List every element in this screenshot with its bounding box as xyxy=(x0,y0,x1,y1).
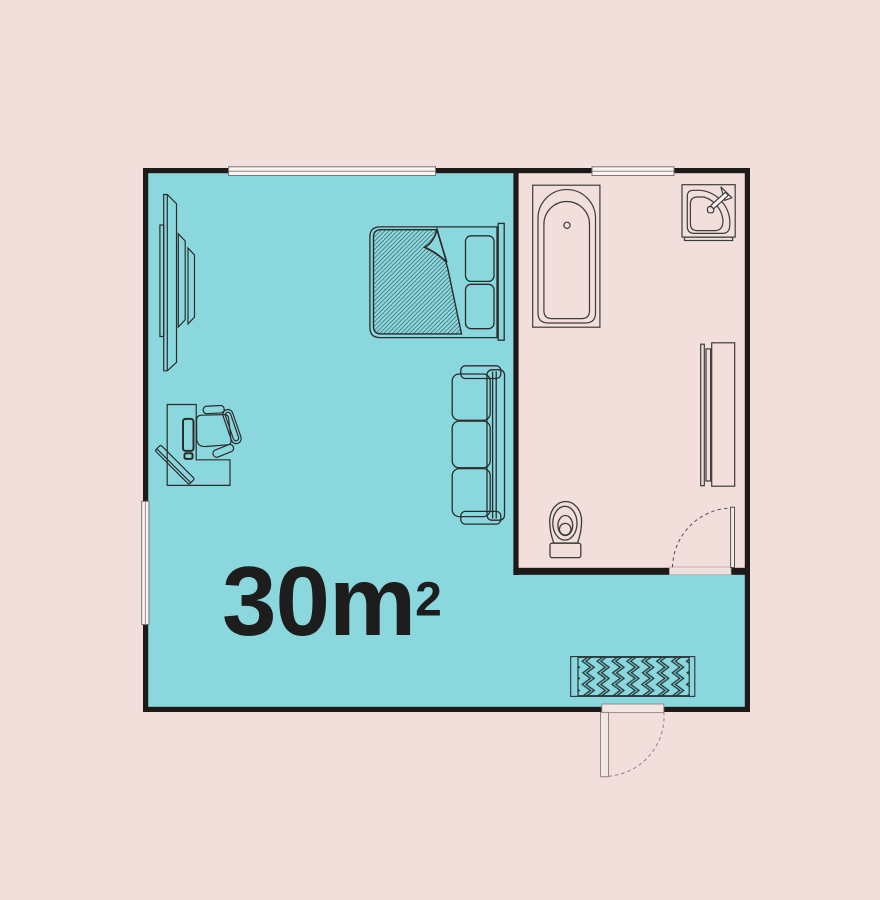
svg-text:30m2: 30m2 xyxy=(222,546,441,656)
